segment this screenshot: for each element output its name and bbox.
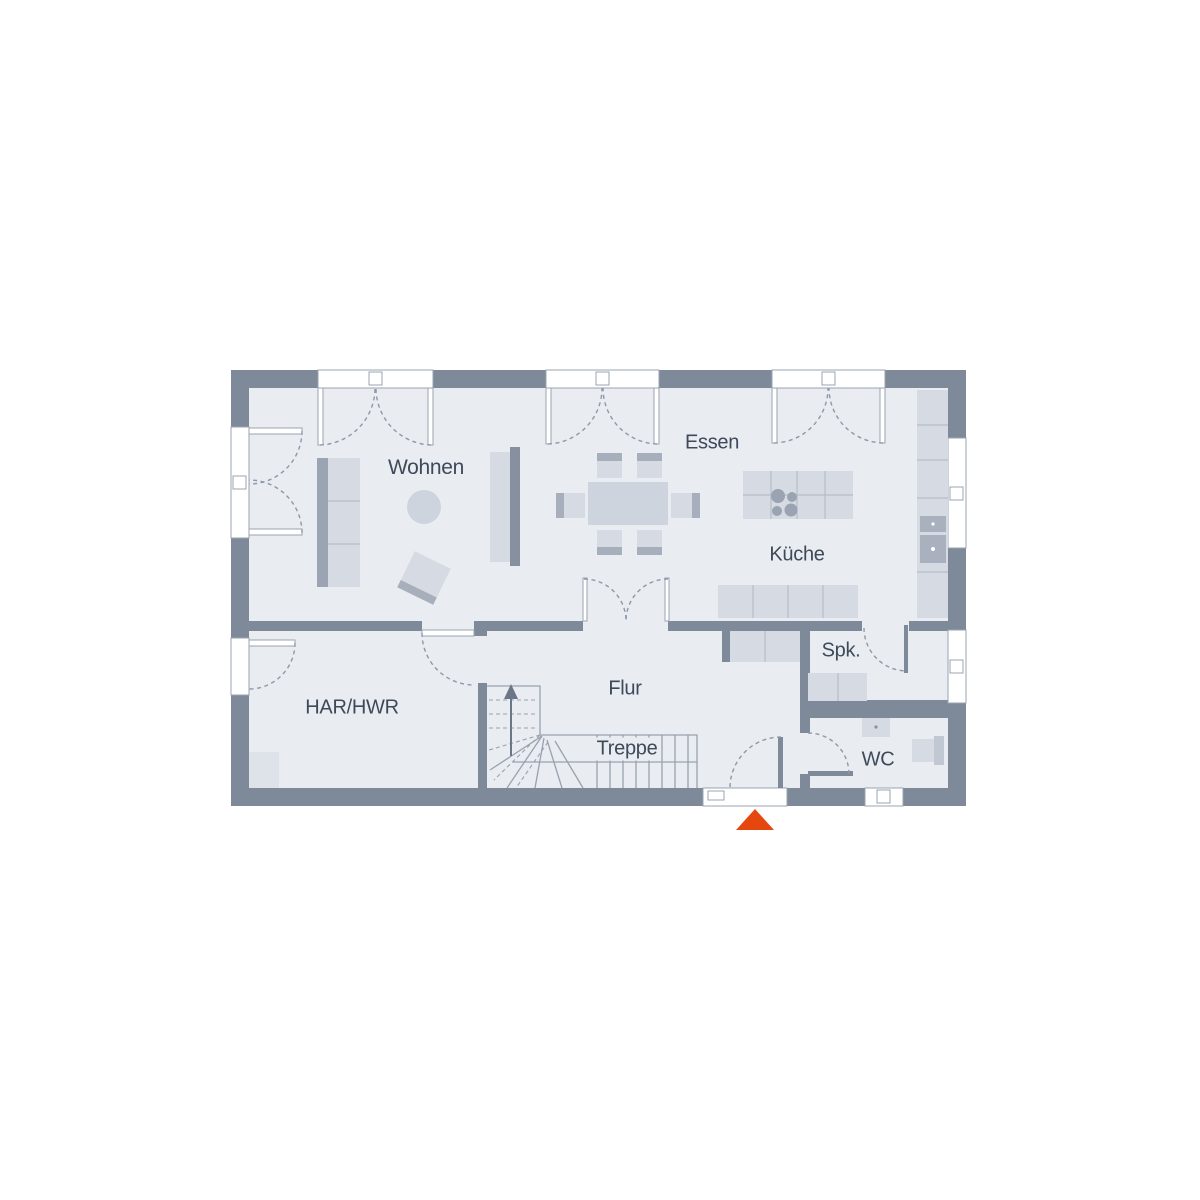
window-mullion-icon [233,476,246,489]
kitchen-island [743,471,853,519]
room-label-spk: Spk. [822,640,861,663]
room-label-har-hwr: HAR/HWR [305,697,398,720]
room-label-wohnen: Wohnen [388,456,464,480]
kitchen-counter-south [718,585,858,618]
hallway-wardrobe [730,631,800,662]
floor-plan-drawing [0,0,1200,1200]
window-mullion-icon [596,372,609,385]
room-label-flur: Flur [608,678,641,701]
window-mullion-icon [950,660,963,673]
window-mullion-icon [950,487,963,500]
tv-sideboard [490,447,520,566]
window-mullion-icon [369,372,382,385]
wc-toilet [912,736,944,765]
wc-sink [862,718,890,737]
window-mullion-icon [822,372,835,385]
room-label-treppe: Treppe [594,738,661,761]
room-label-essen: Essen [685,432,739,455]
utility-appliance [249,752,279,788]
window-mullion-icon [877,790,890,803]
kitchen-counter-east [917,390,948,618]
pantry-cupboard [808,673,867,701]
entrance-arrow-icon [736,809,774,830]
entrance-threshold-detail [708,791,724,800]
floor-plan-canvas: Wohnen Essen Küche Spk. Flur Treppe HAR/… [0,0,1200,1200]
coffee-table [407,490,441,524]
room-label-kueche: Küche [769,544,824,567]
sofa [317,458,360,587]
room-label-wc: WC [862,749,895,772]
